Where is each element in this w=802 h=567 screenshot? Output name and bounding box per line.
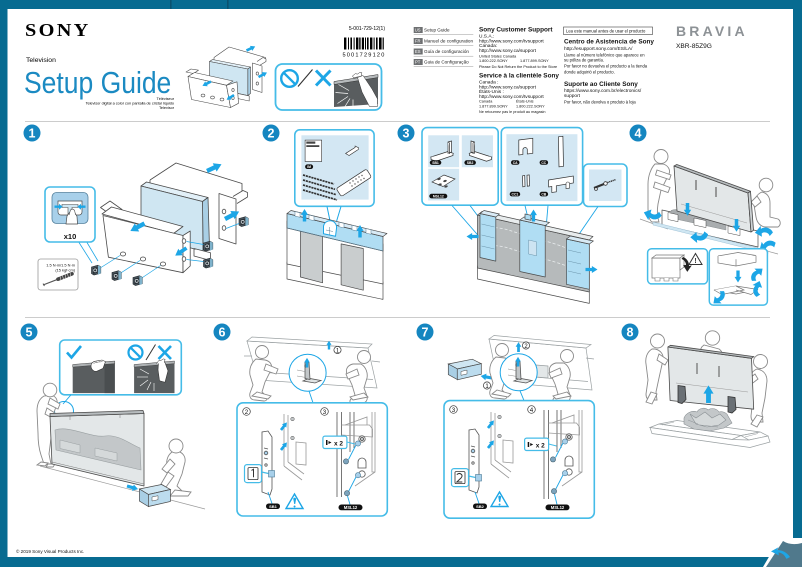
svg-text:Guia de Configuração: Guia de Configuração <box>424 60 469 65</box>
svg-text:2: 2 <box>245 409 249 416</box>
svg-text:Téléviseur: Téléviseur <box>156 97 174 101</box>
svg-text:Canada: Canada <box>479 100 493 104</box>
svg-text:États-Unis: États-Unis <box>516 99 534 104</box>
svg-text:3: 3 <box>403 127 410 141</box>
svg-text:1.877.899.SONY: 1.877.899.SONY <box>479 105 508 109</box>
svg-text:CC1: CC1 <box>512 192 519 196</box>
svg-text:CC: CC <box>541 161 546 165</box>
svg-text:donde adquirió el producto.: donde adquirió el producto. <box>564 70 615 75</box>
svg-text:Suporte ao Cliente Sony: Suporte ao Cliente Sony <box>564 81 638 88</box>
svg-text:8: 8 <box>627 326 634 340</box>
svg-text:!: ! <box>694 258 696 265</box>
svg-text:5-001-729-12(1): 5-001-729-12(1) <box>349 26 385 32</box>
svg-text:x 2: x 2 <box>536 442 545 449</box>
svg-text:MSL12: MSL12 <box>344 505 358 510</box>
svg-text:x10: x10 <box>64 232 77 241</box>
svg-text:1.800.222.SONY: 1.800.222.SONY <box>516 105 545 109</box>
svg-text:CA: CA <box>513 161 518 165</box>
svg-text:Centro de Asistencia de Sony: Centro de Asistencia de Sony <box>564 39 654 46</box>
svg-text:SB1: SB1 <box>432 161 439 165</box>
svg-text:7: 7 <box>422 326 429 340</box>
svg-text:US: US <box>415 28 421 33</box>
svg-text:SONY: SONY <box>25 21 91 40</box>
svg-text:Por favor, não devolva o produ: Por favor, não devolva o produto à loja <box>564 100 636 105</box>
svg-text:1: 1 <box>29 127 36 141</box>
svg-text:Guía de configuración: Guía de configuración <box>424 49 469 54</box>
svg-text:6: 6 <box>219 326 226 340</box>
svg-text:su póliza de garantía.: su póliza de garantía. <box>564 58 604 63</box>
svg-text:MSL12: MSL12 <box>433 194 444 198</box>
svg-text:Por favor no devuelva el produ: Por favor no devuelva el producto a la t… <box>564 64 648 69</box>
svg-text:3: 3 <box>323 409 327 416</box>
svg-text:Television: Television <box>26 57 56 64</box>
svg-text:Manuel de configuration: Manuel de configuration <box>424 39 473 44</box>
svg-text:5001729120: 5001729120 <box>342 53 385 59</box>
svg-text:BRAVIA: BRAVIA <box>676 23 748 39</box>
svg-text:4: 4 <box>635 127 642 141</box>
svg-text:SB2: SB2 <box>467 161 474 165</box>
svg-text:1.877.899.SONY: 1.877.899.SONY <box>520 59 549 63</box>
svg-text:support: support <box>564 93 581 99</box>
svg-text:Setup Guide: Setup Guide <box>424 28 450 33</box>
svg-text:Ne retournez pas le produit au: Ne retournez pas le produit au magasin <box>479 110 546 114</box>
svg-text:SB2: SB2 <box>476 504 485 509</box>
svg-text:CB: CB <box>541 192 546 196</box>
svg-text:PT: PT <box>415 60 421 65</box>
svg-text:5: 5 <box>26 326 33 340</box>
svg-text:SB1: SB1 <box>269 504 278 509</box>
svg-text:2: 2 <box>268 127 275 141</box>
svg-text:4: 4 <box>530 407 534 414</box>
svg-text:FR: FR <box>415 39 421 44</box>
svg-text:(15 kgf·cm): (15 kgf·cm) <box>55 268 75 273</box>
svg-text:IM: IM <box>307 165 311 169</box>
svg-text:http://www.sony.ca/support: http://www.sony.ca/support <box>479 48 537 54</box>
svg-text:ES: ES <box>415 49 421 54</box>
svg-text:Sony Customer Support: Sony Customer Support <box>479 27 553 34</box>
svg-text:© 2019 Sony Visual Products In: © 2019 Sony Visual Products Inc. <box>16 548 84 554</box>
svg-text:x 2: x 2 <box>334 440 343 447</box>
svg-text:United States Canada: United States Canada <box>479 55 517 59</box>
svg-text:Televisor digital a color con: Televisor digital a color con pantalla d… <box>86 102 174 106</box>
svg-text:Setup Guide: Setup Guide <box>24 66 171 100</box>
svg-text:Service à la clientèle Sony: Service à la clientèle Sony <box>479 73 559 80</box>
svg-text:XBR-85Z9G: XBR-85Z9G <box>676 43 712 50</box>
svg-text:1.800.222.SONY: 1.800.222.SONY <box>479 59 508 63</box>
svg-text:3: 3 <box>452 407 456 414</box>
svg-text:http://esupport.sony.com/ES/LA: http://esupport.sony.com/ES/LA/ <box>564 46 633 52</box>
svg-text:Please Do Not Return the Produ: Please Do Not Return the Product to the … <box>479 65 557 69</box>
svg-text:Televisor: Televisor <box>159 106 175 110</box>
svg-text:MSL12: MSL12 <box>551 505 565 510</box>
svg-text:Lea este manual antes de usar: Lea este manual antes de usar el product… <box>566 28 646 33</box>
